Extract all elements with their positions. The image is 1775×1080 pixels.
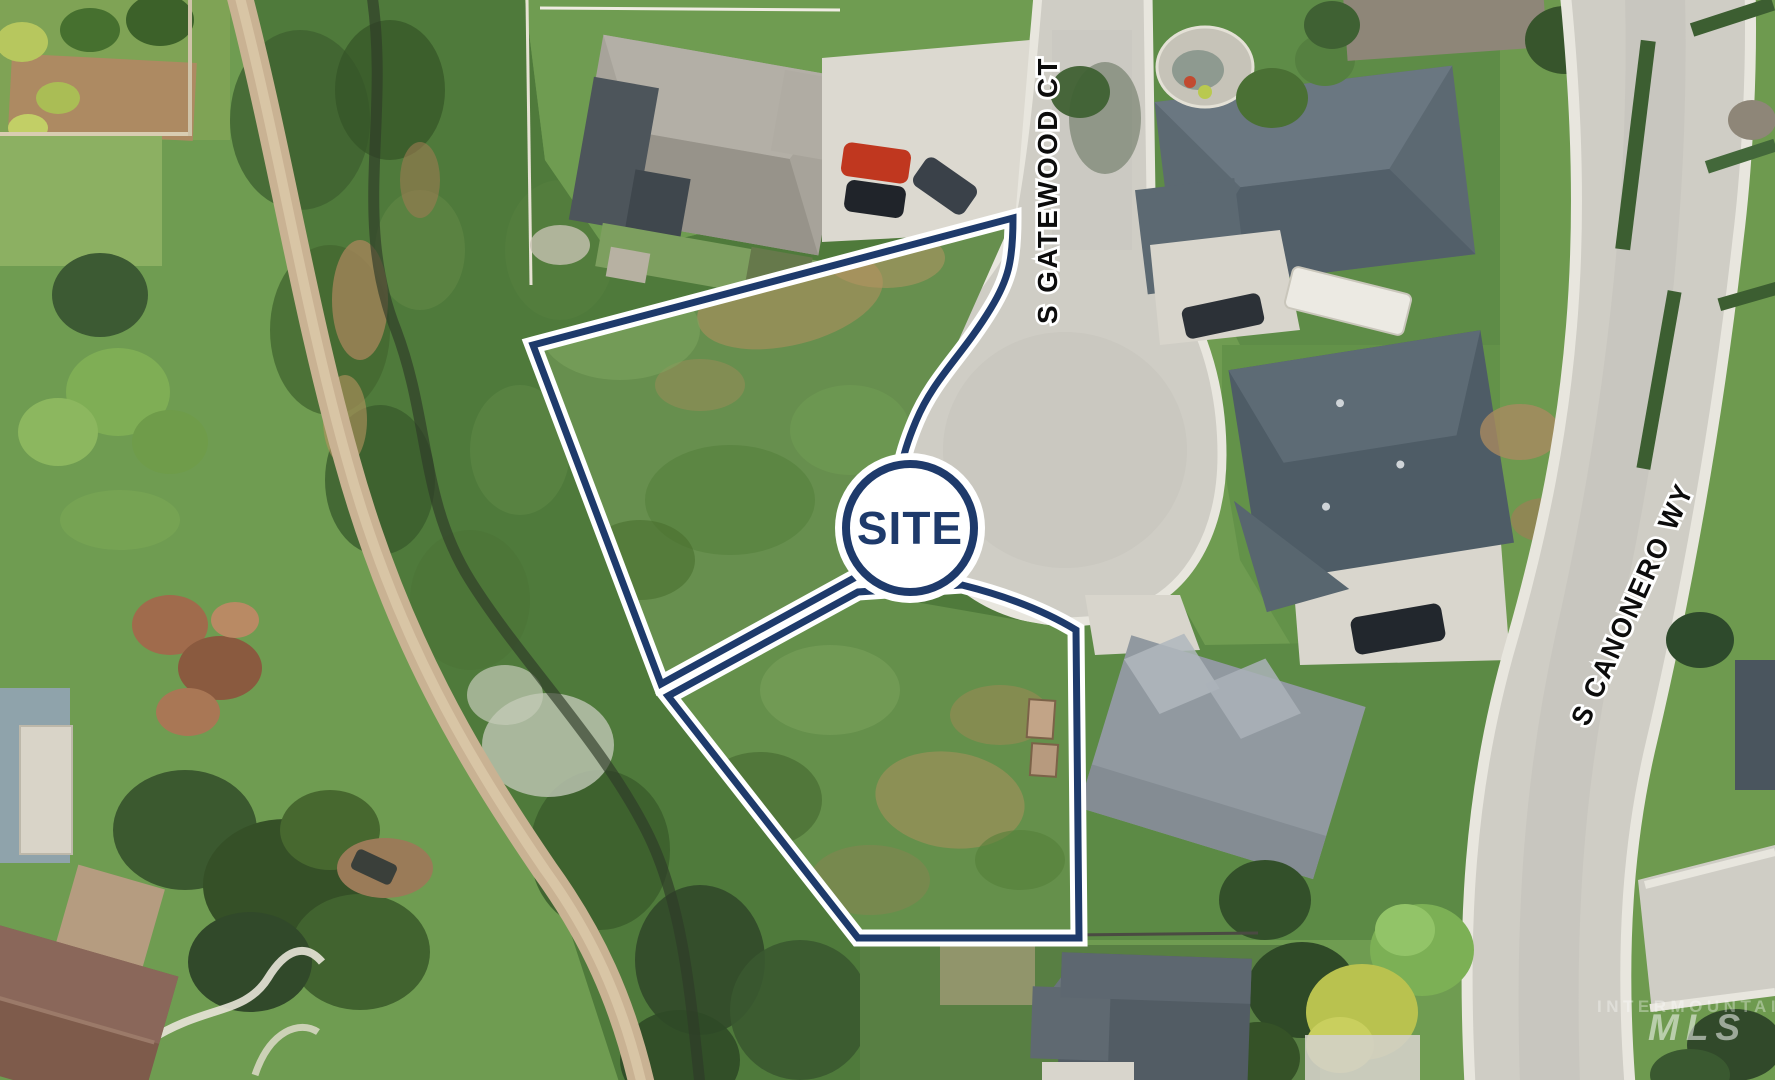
stone-path	[530, 225, 590, 265]
garden-box	[1027, 699, 1056, 739]
house-roof-east	[1735, 660, 1775, 790]
garden-box	[1030, 743, 1058, 777]
fence	[540, 8, 840, 10]
satellite-scene: SITE S GATEWOOD CT S CANONERO WY INTERMO…	[0, 0, 1775, 1080]
site-marker-label: SITE	[857, 502, 963, 554]
street-label-gatewood: S GATEWOOD CT	[1032, 56, 1063, 324]
driveway-top-center	[822, 40, 1030, 242]
site-marker: SITE	[835, 453, 985, 603]
aerial-map: SITE S GATEWOOD CT S CANONERO WY INTERMO…	[0, 0, 1775, 1080]
watermark-line2: MLS	[1648, 1007, 1747, 1048]
